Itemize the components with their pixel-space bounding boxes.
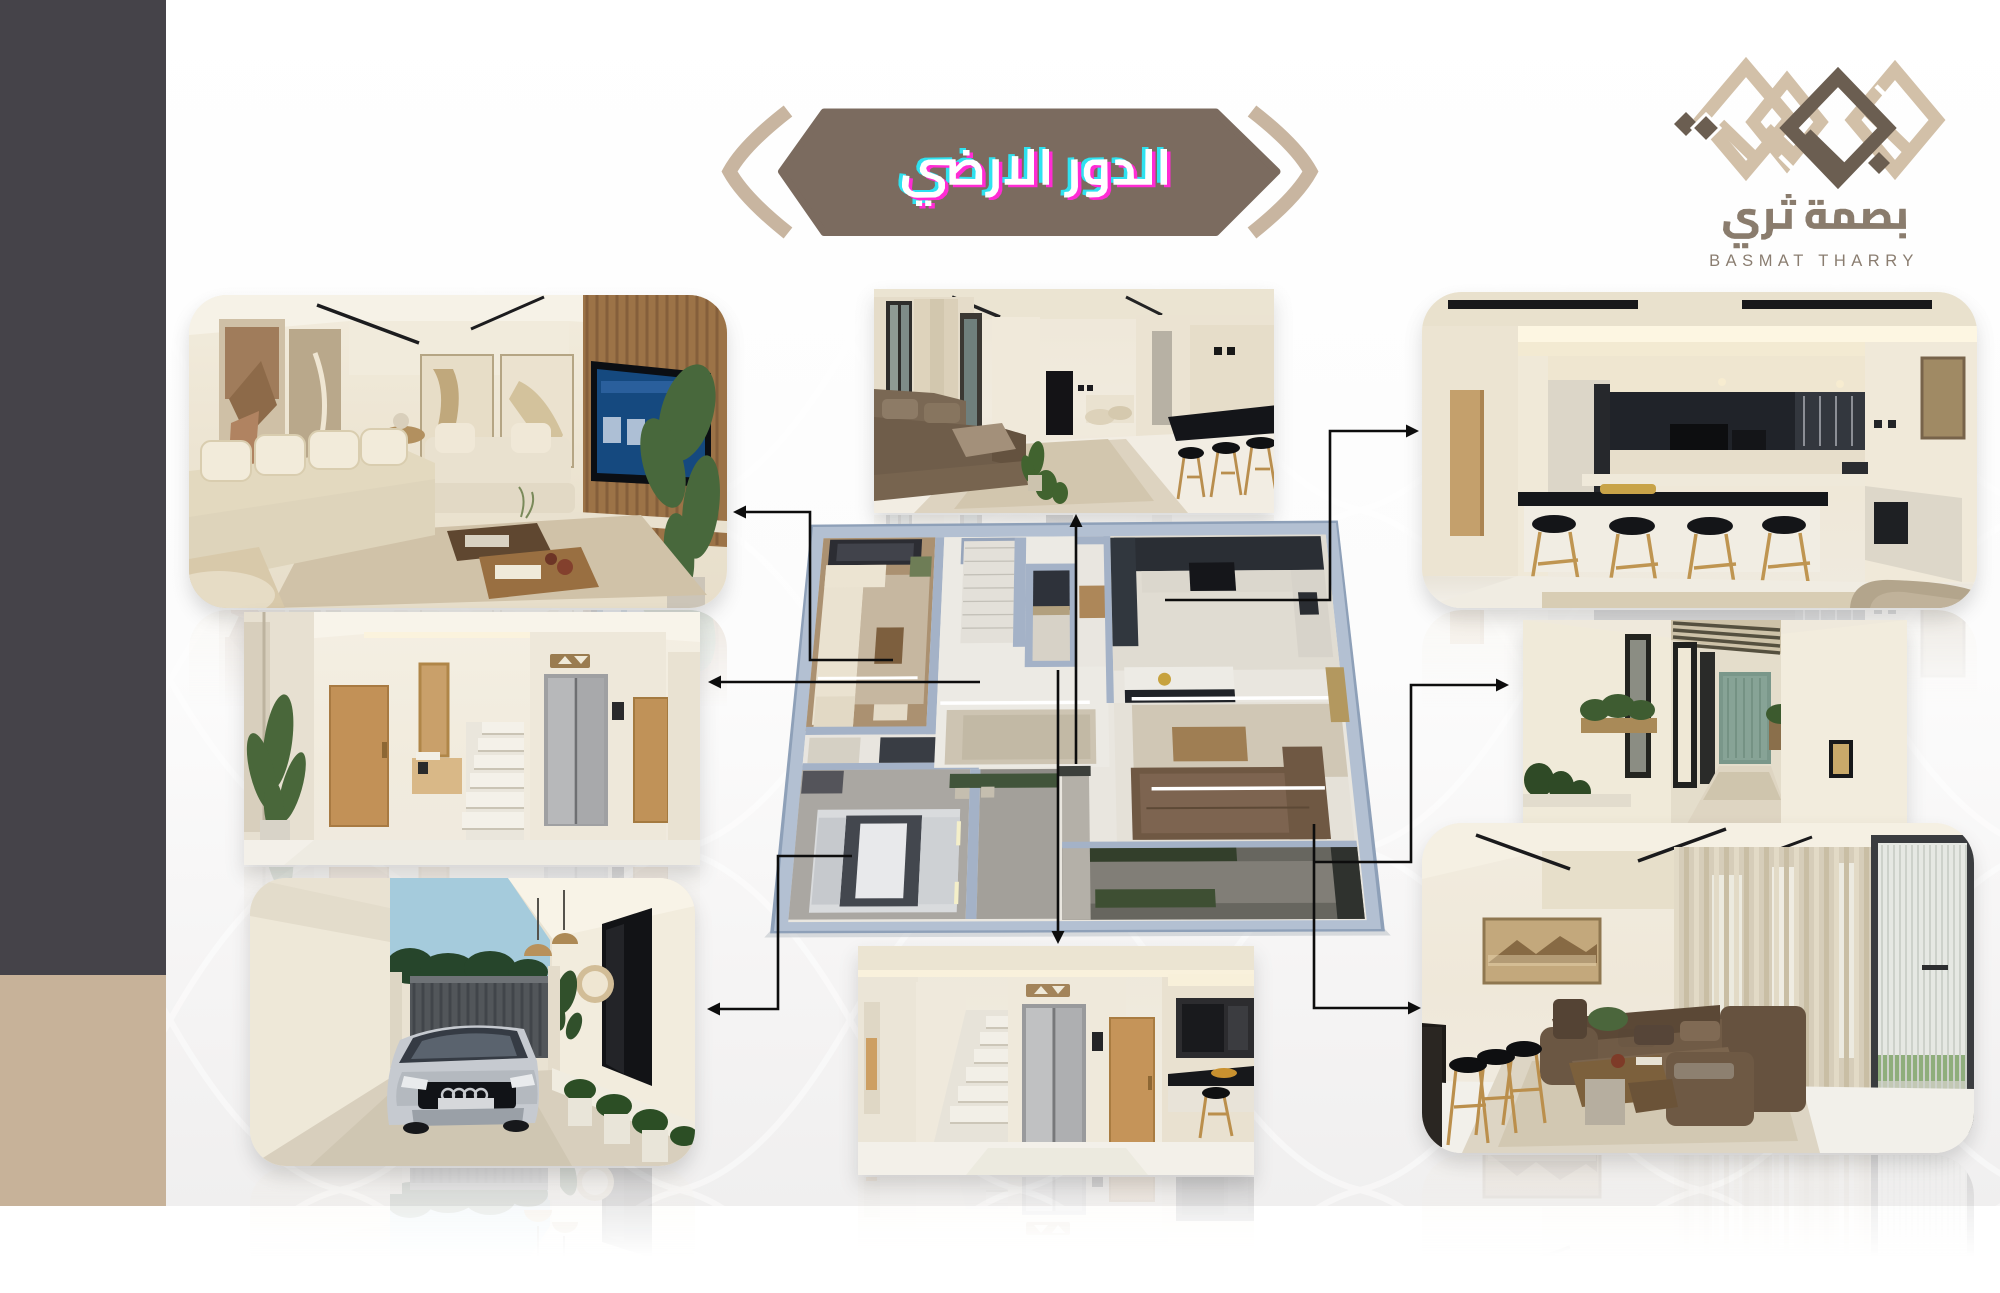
svg-text:BASMAT THARRY: BASMAT THARRY <box>1709 252 1919 270</box>
